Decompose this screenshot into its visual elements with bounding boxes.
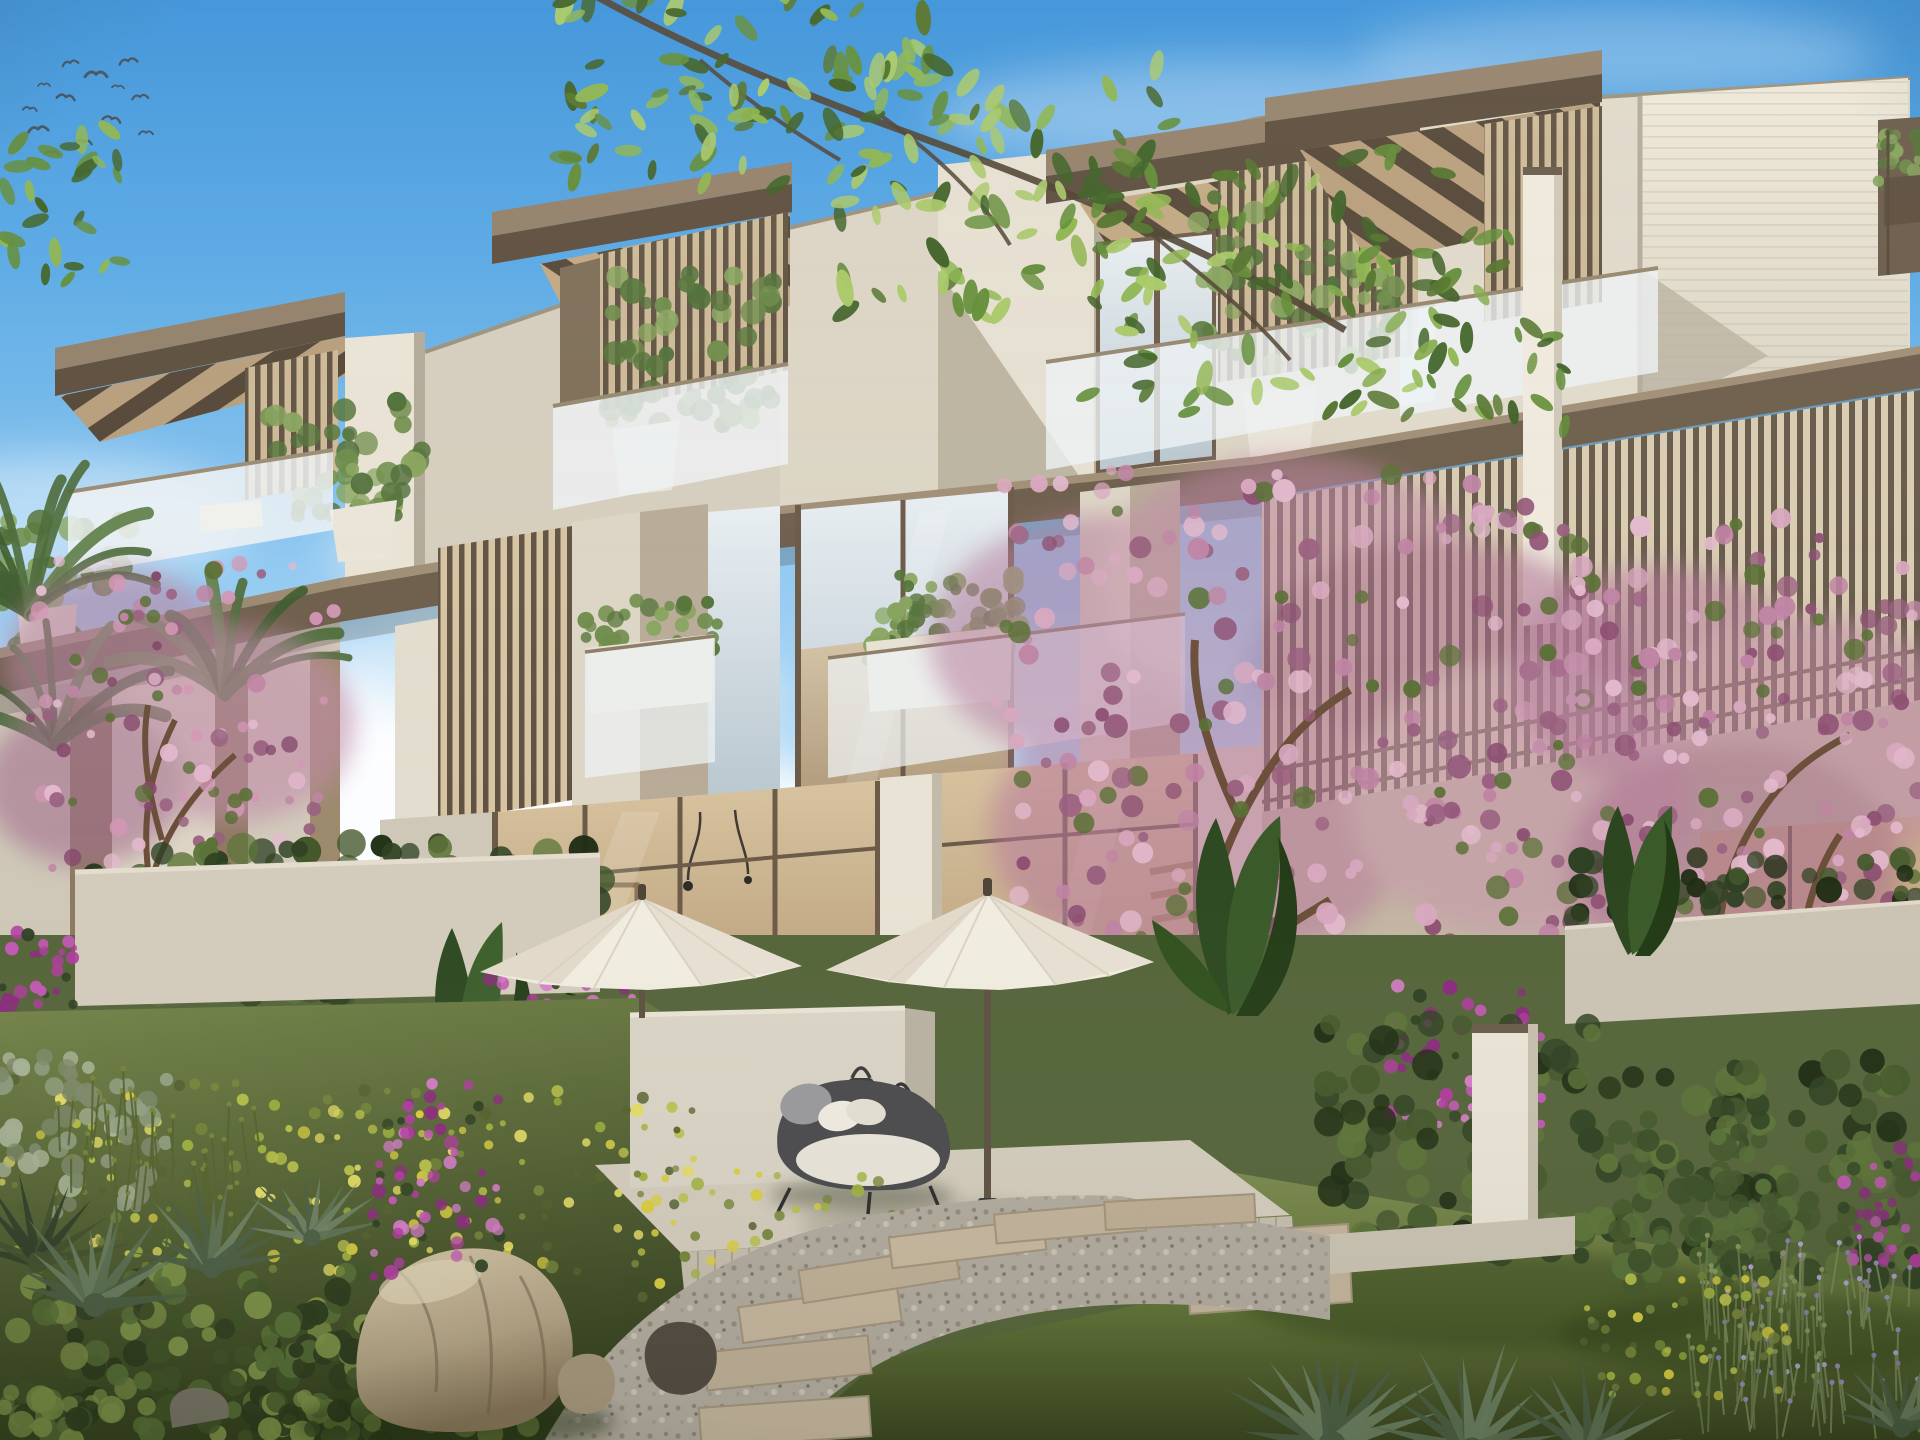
rendering-canvas [0, 0, 1920, 1440]
scene [0, 0, 1920, 1440]
vignette-overlay [0, 0, 1920, 1440]
